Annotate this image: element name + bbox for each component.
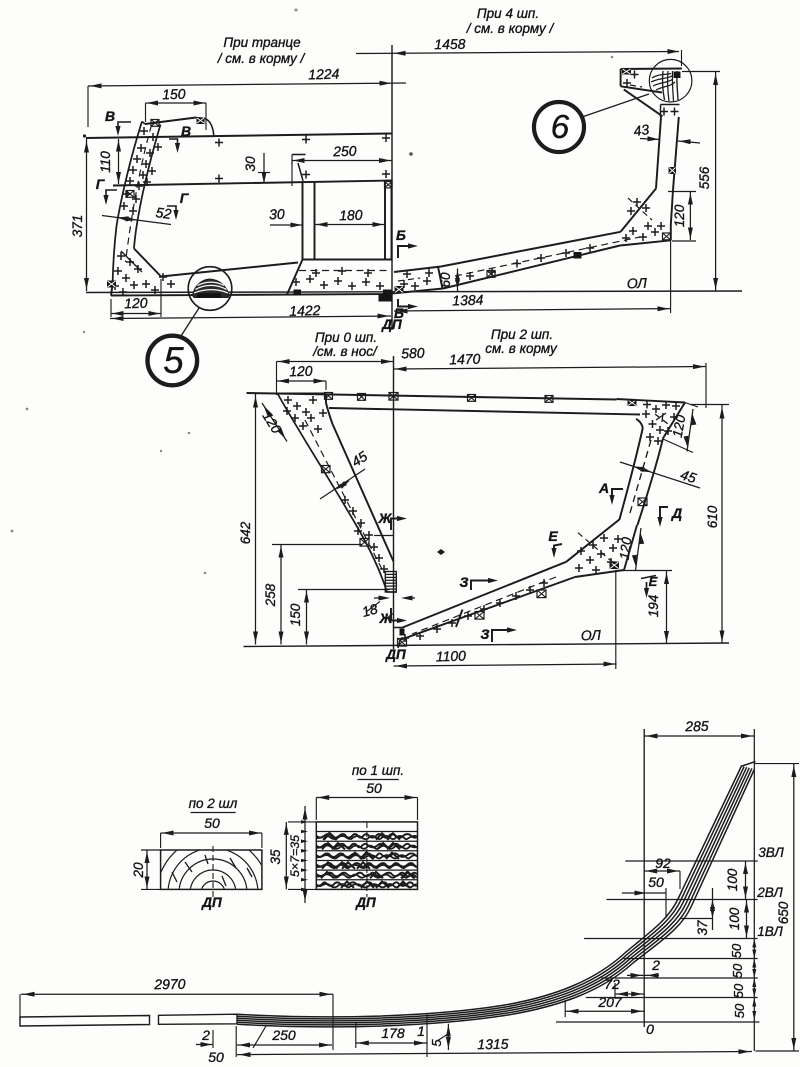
svg-text:по 1 шп.: по 1 шп. [352, 763, 404, 778]
svg-text:50: 50 [732, 1003, 747, 1018]
svg-text:1422: 1422 [289, 302, 321, 319]
svg-text:120: 120 [670, 413, 689, 438]
svg-text:1ВЛ: 1ВЛ [757, 924, 783, 939]
svg-text:1224: 1224 [308, 65, 340, 82]
svg-text:610: 610 [705, 505, 720, 528]
svg-text:556: 556 [697, 166, 712, 189]
svg-text:/ см. в корму /: / см. в корму / [217, 51, 306, 66]
svg-text:120: 120 [672, 204, 687, 227]
svg-text:250: 250 [332, 143, 357, 160]
svg-text:ОЛ: ОЛ [581, 627, 602, 644]
svg-text:92: 92 [655, 855, 671, 871]
svg-text:2ВЛ: 2ВЛ [756, 885, 783, 900]
svg-text:А: А [598, 480, 609, 496]
svg-text:Г: Г [96, 176, 106, 192]
svg-text:207: 207 [597, 994, 623, 1010]
svg-text:52: 52 [155, 204, 173, 222]
svg-text:30: 30 [269, 206, 285, 223]
svg-text:178: 178 [381, 1025, 405, 1041]
svg-text:При 0 шп.: При 0 шп. [315, 330, 377, 345]
svg-text:371: 371 [70, 215, 85, 238]
svg-text:3ВЛ: 3ВЛ [758, 845, 784, 860]
svg-text:ДП: ДП [355, 895, 376, 910]
svg-text:см. в корму: см. в корму [485, 341, 558, 356]
svg-text:Е: Е [548, 528, 558, 544]
svg-text:1100: 1100 [436, 647, 467, 664]
svg-text:50: 50 [731, 983, 746, 998]
svg-text:650: 650 [776, 901, 791, 924]
svg-text:285: 285 [684, 718, 709, 734]
svg-text:З: З [481, 626, 490, 642]
svg-text:50: 50 [729, 943, 744, 958]
svg-text:50: 50 [366, 780, 382, 796]
svg-text:2970: 2970 [153, 976, 186, 993]
svg-text:2: 2 [201, 1027, 210, 1043]
svg-text:642: 642 [238, 521, 253, 544]
svg-text:5: 5 [429, 1039, 444, 1047]
svg-text:50: 50 [648, 874, 664, 890]
svg-text:При 4 шп.: При 4 шп. [477, 6, 539, 21]
svg-text:ОЛ: ОЛ [627, 275, 648, 292]
svg-text:При транце: При транце [223, 35, 300, 50]
svg-text:45: 45 [679, 466, 699, 486]
svg-text:0: 0 [646, 1021, 654, 1037]
svg-text:В: В [105, 108, 115, 124]
svg-text:150: 150 [288, 603, 303, 626]
svg-text:50: 50 [730, 963, 745, 978]
svg-text:2: 2 [651, 957, 660, 973]
svg-text:37: 37 [695, 920, 710, 936]
svg-text:110: 110 [98, 151, 113, 173]
svg-text:150: 150 [162, 86, 186, 103]
svg-text:1384: 1384 [452, 291, 484, 308]
svg-text:35: 35 [268, 849, 283, 865]
svg-text:Г: Г [180, 190, 190, 206]
svg-text:1458: 1458 [434, 36, 466, 53]
svg-text:100: 100 [727, 907, 742, 930]
svg-text:Д: Д [671, 505, 682, 521]
svg-text:20: 20 [131, 862, 146, 879]
svg-text:120: 120 [289, 363, 313, 380]
svg-text:180: 180 [339, 207, 363, 224]
svg-text:18: 18 [360, 600, 379, 620]
svg-text:5×7=35: 5×7=35 [288, 835, 302, 877]
svg-text:ДП: ДП [381, 317, 402, 332]
svg-text:6: 6 [551, 109, 570, 146]
svg-text:Б: Б [396, 227, 406, 243]
svg-text:120: 120 [124, 295, 148, 312]
svg-text:5: 5 [163, 340, 184, 381]
svg-text:50: 50 [204, 815, 220, 831]
svg-text:1: 1 [417, 1023, 425, 1039]
svg-text:60: 60 [438, 272, 453, 288]
svg-text:ДП: ДП [385, 647, 406, 662]
svg-text:/ см. в корму /: / см. в корму / [466, 21, 555, 36]
svg-text:ДП: ДП [201, 895, 222, 910]
svg-text:258: 258 [263, 583, 278, 607]
svg-text:30: 30 [243, 156, 258, 172]
svg-text:З: З [460, 574, 469, 590]
svg-text:При 2 шп.: При 2 шп. [491, 327, 553, 342]
svg-text:580: 580 [401, 345, 425, 362]
svg-text:/см. в нос/: /см. в нос/ [312, 344, 378, 359]
svg-text:250: 250 [271, 1027, 296, 1043]
svg-text:1315: 1315 [477, 1036, 509, 1053]
svg-text:1470: 1470 [449, 350, 481, 367]
svg-text:194: 194 [646, 595, 661, 618]
svg-text:по 2 шл: по 2 шл [189, 796, 238, 811]
svg-text:100: 100 [725, 868, 740, 891]
svg-text:В: В [181, 123, 191, 139]
svg-text:50: 50 [208, 1049, 224, 1065]
